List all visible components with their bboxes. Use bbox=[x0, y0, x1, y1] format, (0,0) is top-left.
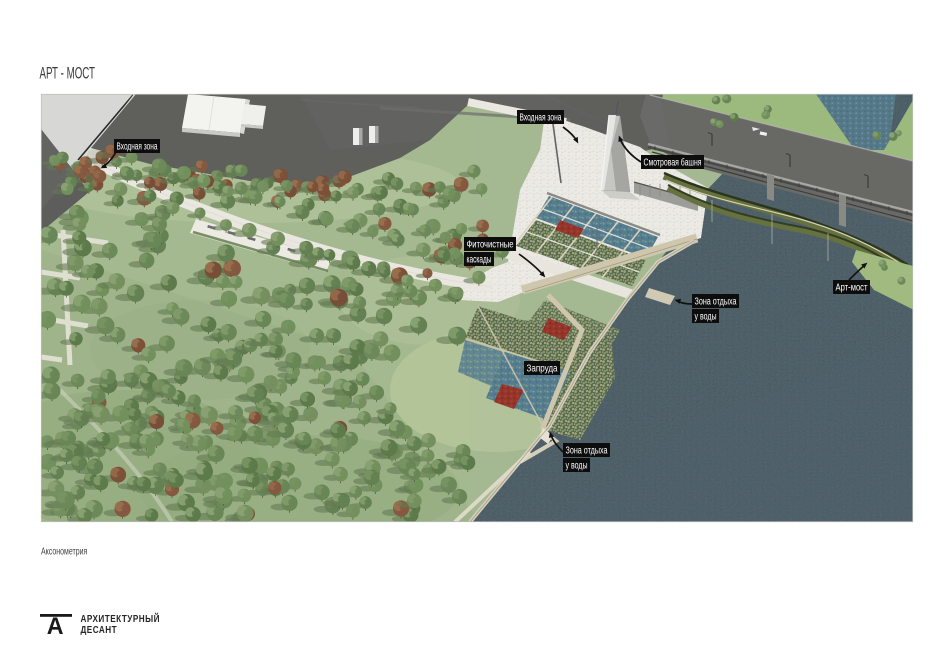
svg-text:Смотровая башня: Смотровая башня bbox=[644, 157, 702, 169]
svg-text:Арт-мост: Арт-мост bbox=[836, 283, 868, 294]
svg-text:Запруда: Запруда bbox=[527, 364, 558, 375]
svg-text:Входная зона: Входная зона bbox=[520, 113, 562, 124]
svg-text:каскады: каскады bbox=[467, 255, 492, 266]
svg-text:Фиточистные: Фиточистные bbox=[467, 240, 514, 251]
svg-text:у воды: у воды bbox=[695, 312, 717, 323]
svg-text:Зона отдыха: Зона отдыха bbox=[566, 446, 608, 457]
svg-text:ДЕСАНТ: ДЕСАНТ bbox=[81, 623, 118, 635]
svg-text:Входная зона: Входная зона bbox=[117, 142, 158, 153]
svg-text:АРТ - МОСТ: АРТ - МОСТ bbox=[40, 64, 95, 82]
svg-text:А: А bbox=[47, 612, 64, 640]
svg-text:Зона отдыха: Зона отдыха bbox=[695, 297, 737, 308]
svg-text:Аксонометрия: Аксонометрия bbox=[41, 545, 88, 557]
svg-text:у воды: у воды bbox=[566, 461, 588, 472]
